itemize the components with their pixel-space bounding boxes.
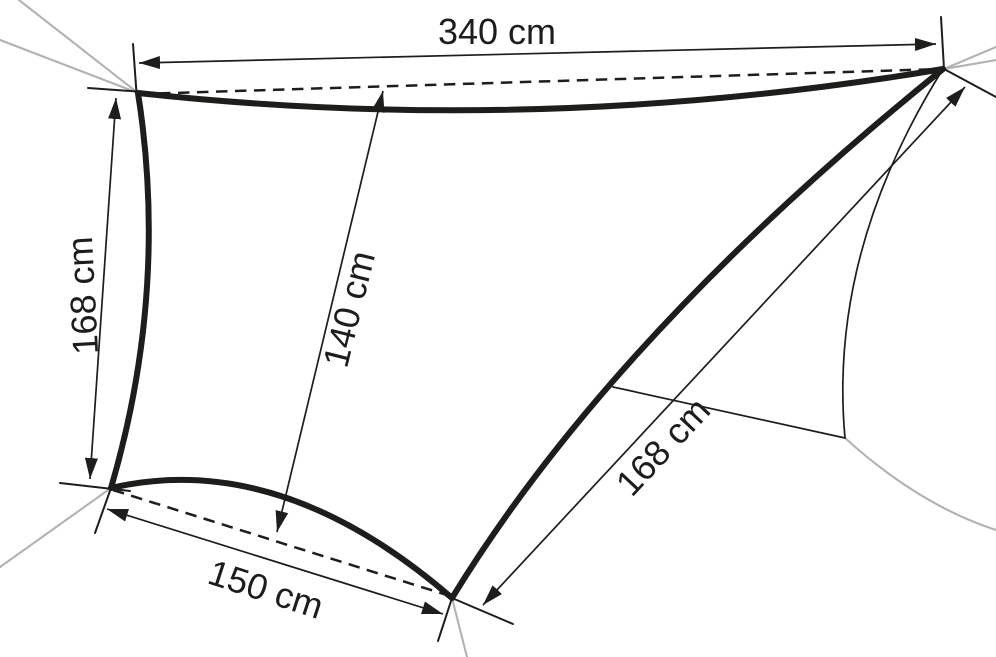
dimension-lines bbox=[90, 44, 965, 614]
guy-rope-top-left-lower bbox=[0, 40, 138, 93]
right-panel-seam-line bbox=[613, 387, 845, 438]
tarp-right-edge bbox=[452, 69, 943, 598]
right-panel-catenary-curve bbox=[843, 69, 943, 438]
guy-rope-top-left-upper bbox=[19, 0, 138, 93]
extension-line-right-top bbox=[944, 69, 996, 97]
label-left-height: 168 cm bbox=[59, 236, 106, 356]
tarp-left-edge bbox=[111, 93, 149, 488]
extension-line-top-right-vertical bbox=[941, 17, 944, 69]
top-edge-chord-dashed bbox=[140, 69, 941, 94]
extension-line-bottom-center-left bbox=[438, 598, 452, 641]
tarp-panel-lines bbox=[613, 69, 943, 438]
extension-line-right-bottom bbox=[452, 598, 513, 624]
label-bottom-width: 150 cm bbox=[203, 551, 328, 626]
reference-chords bbox=[113, 69, 941, 596]
guy-rope-right-tieout bbox=[845, 438, 996, 530]
dimension-line-right-edge bbox=[483, 87, 965, 605]
tarp-dimension-diagram: 340 cm 168 cm 140 cm 150 cm 168 cm bbox=[0, 0, 996, 657]
label-center-height: 140 cm bbox=[315, 247, 383, 371]
label-top-width: 340 cm bbox=[438, 11, 556, 52]
diagram-canvas: 340 cm 168 cm 140 cm 150 cm 168 cm bbox=[0, 0, 996, 657]
guy-rope-bottom-center bbox=[452, 598, 467, 657]
tarp-outline bbox=[111, 69, 943, 598]
extension-line-left-top bbox=[88, 88, 158, 93]
label-right-edge: 168 cm bbox=[608, 389, 719, 503]
guy-rope-top-right-lower bbox=[944, 60, 996, 69]
guy-rope-bottom-left bbox=[0, 488, 111, 567]
guy-rope-top-right-upper bbox=[944, 47, 996, 69]
